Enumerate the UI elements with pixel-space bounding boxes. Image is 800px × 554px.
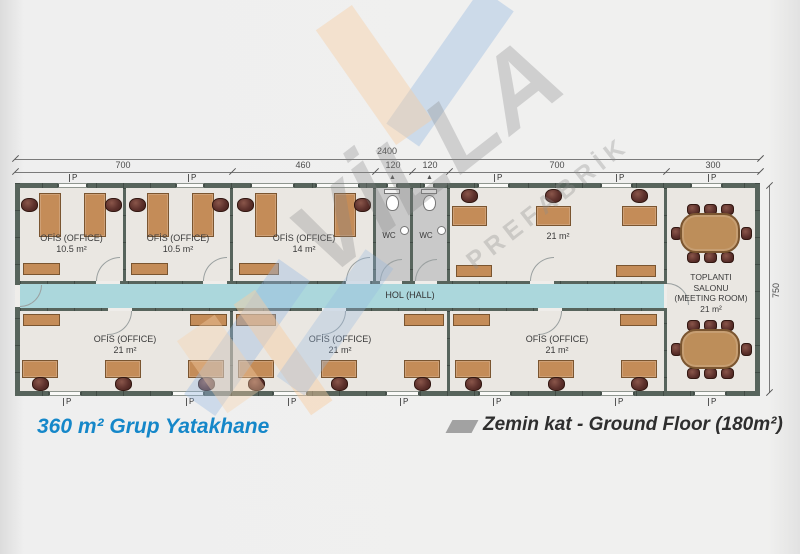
- dim-height-label: 750: [772, 268, 784, 312]
- dim-tick: [757, 168, 764, 175]
- ground-floor-icon: [446, 420, 479, 433]
- window-label: P: [494, 174, 502, 182]
- room-label-office-d: 21 m²: [452, 231, 664, 242]
- toilet-tank-icon: [384, 189, 400, 194]
- desk: [536, 206, 571, 226]
- window-label: P: [69, 174, 77, 182]
- desk: [622, 206, 657, 226]
- window: [250, 183, 295, 188]
- chair: [687, 368, 700, 379]
- cabinet: [453, 314, 490, 326]
- cabinet: [620, 314, 657, 326]
- window-label: P: [186, 398, 194, 406]
- watermark-logo-stripe: [386, 0, 513, 147]
- dim-tick: [766, 389, 773, 396]
- chair: [741, 343, 752, 356]
- desk: [39, 193, 61, 237]
- dim-segment-label: 460: [278, 161, 328, 170]
- toilet-icon: [423, 195, 436, 211]
- room-name: OFİS (OFFICE): [235, 233, 373, 244]
- window: [175, 183, 205, 188]
- room-name-line: (MEETING ROOM): [667, 293, 755, 304]
- chair: [21, 198, 38, 212]
- plan-title-left: 360 m² Grup Yatakhane: [37, 415, 269, 439]
- hall-floor: [20, 284, 664, 308]
- room-area: 21 m²: [667, 304, 755, 315]
- window: [690, 183, 723, 188]
- cabinet: [404, 314, 444, 326]
- cabinet: [456, 265, 492, 277]
- desk: [192, 193, 214, 237]
- window: [693, 391, 727, 396]
- cabinet: [236, 314, 276, 326]
- chair: [414, 377, 431, 391]
- room-name: OFİS (OFFICE): [20, 334, 230, 345]
- window-label: P: [188, 174, 196, 182]
- cabinet: [23, 263, 60, 275]
- window-label: P: [400, 398, 408, 406]
- chair: [631, 189, 648, 203]
- room-area: 10.5 m²: [126, 244, 230, 255]
- vent-window: [386, 183, 398, 188]
- room-name-line: SALONU: [667, 283, 755, 294]
- door-opening: [96, 281, 120, 284]
- vent-arrow-icon: ▲: [389, 174, 396, 181]
- room-label-office-c: OFİS (OFFICE) 14 m²: [235, 233, 373, 256]
- window-label: P: [615, 398, 623, 406]
- cabinet: [239, 263, 279, 275]
- cabinet: [616, 265, 656, 277]
- cabinet: [23, 314, 60, 326]
- door-opening: [415, 281, 437, 284]
- dim-segment-line: [15, 172, 760, 173]
- room-label-meeting: TOPLANTI SALONU (MEETING ROOM) 21 m²: [667, 272, 755, 315]
- dim-tick: [757, 155, 764, 162]
- dim-segment-label: 300: [688, 161, 738, 170]
- room-area: 21 m²: [450, 345, 664, 356]
- plan-title-right: Zemin kat - Ground Floor (180m²): [483, 414, 783, 436]
- chair: [465, 377, 482, 391]
- door-opening: [530, 281, 554, 284]
- toilet-tank-icon: [421, 189, 437, 194]
- chair: [198, 377, 215, 391]
- chair: [354, 198, 371, 212]
- chair: [687, 252, 700, 263]
- chair: [248, 377, 265, 391]
- desk: [188, 360, 224, 378]
- room-name: OFİS (OFFICE): [450, 334, 664, 345]
- chair: [32, 377, 49, 391]
- window: [272, 391, 308, 396]
- window: [48, 391, 82, 396]
- toilet-icon: [386, 195, 399, 211]
- room-label-office-b: OFİS (OFFICE) 10.5 m²: [126, 233, 230, 256]
- dim-height-line: [769, 185, 770, 393]
- chair: [545, 189, 562, 203]
- chair: [129, 198, 146, 212]
- door-opening: [346, 281, 370, 284]
- room-name: OFİS (OFFICE): [20, 233, 123, 244]
- window-label: P: [493, 398, 501, 406]
- desk: [84, 193, 106, 237]
- chair: [741, 227, 752, 240]
- desk: [255, 193, 277, 237]
- window: [477, 183, 510, 188]
- cabinet: [131, 263, 168, 275]
- chair: [721, 252, 734, 263]
- chair: [105, 198, 122, 212]
- conference-table: [680, 213, 740, 253]
- room-label-office-g: OFİS (OFFICE) 21 m²: [450, 334, 664, 357]
- window: [385, 391, 420, 396]
- floor-plan-canvas: 2400 700 460 120 120 700 300 750: [0, 0, 800, 554]
- window: [171, 391, 205, 396]
- vent-window: [423, 183, 435, 188]
- chair: [548, 377, 565, 391]
- watermark-logo-stripe: [316, 5, 432, 145]
- door-opening: [203, 281, 227, 284]
- window-label: P: [708, 398, 716, 406]
- desk: [452, 206, 487, 226]
- window: [600, 391, 635, 396]
- desk: [238, 360, 274, 378]
- window: [57, 183, 88, 188]
- room-label-wc2: WC: [413, 232, 439, 240]
- window: [315, 183, 360, 188]
- room-label-wc1: WC: [376, 232, 402, 240]
- room-area: 21 m²: [20, 345, 230, 356]
- dim-total-label: 2400: [347, 147, 427, 156]
- window-label: P: [63, 398, 71, 406]
- exterior-wall-right: [755, 183, 760, 396]
- desk: [22, 360, 58, 378]
- chair: [237, 198, 254, 212]
- door-opening: [380, 281, 402, 284]
- chair: [704, 368, 717, 379]
- chair: [721, 368, 734, 379]
- chair: [461, 189, 478, 203]
- room-label-office-a: OFİS (OFFICE) 10.5 m²: [20, 233, 123, 256]
- window-label: P: [708, 174, 716, 182]
- window: [478, 391, 512, 396]
- desk: [105, 360, 141, 378]
- chair: [631, 377, 648, 391]
- desk: [538, 360, 574, 378]
- desk: [321, 360, 357, 378]
- desk: [334, 193, 356, 237]
- room-name-line: TOPLANTI: [667, 272, 755, 283]
- room-label-office-e: OFİS (OFFICE) 21 m²: [20, 334, 230, 357]
- vent-arrow-icon: ▲: [426, 174, 433, 181]
- hall-label: HOL (HALL): [345, 291, 475, 300]
- room-area: 21 m²: [233, 345, 447, 356]
- dim-segment-label: 700: [98, 161, 148, 170]
- room-area: 14 m²: [235, 244, 373, 255]
- room-label-office-f: OFİS (OFFICE) 21 m²: [233, 334, 447, 357]
- room-name: OFİS (OFFICE): [126, 233, 230, 244]
- dim-segment-label: 120: [405, 161, 455, 170]
- window-label: P: [616, 174, 624, 182]
- chair: [331, 377, 348, 391]
- room-area: 21 m²: [452, 231, 664, 242]
- chair: [212, 198, 229, 212]
- chair: [115, 377, 132, 391]
- desk: [455, 360, 491, 378]
- room-name: OFİS (OFFICE): [233, 334, 447, 345]
- desk: [147, 193, 169, 237]
- window: [600, 183, 633, 188]
- dim-segment-label: 700: [532, 161, 582, 170]
- desk: [404, 360, 440, 378]
- partition-wall: [230, 188, 233, 281]
- partition-wall: [447, 188, 450, 281]
- cabinet: [190, 314, 227, 326]
- room-area: 10.5 m²: [20, 244, 123, 255]
- window-label: P: [288, 398, 296, 406]
- chair: [704, 252, 717, 263]
- conference-table: [680, 329, 740, 369]
- desk: [621, 360, 657, 378]
